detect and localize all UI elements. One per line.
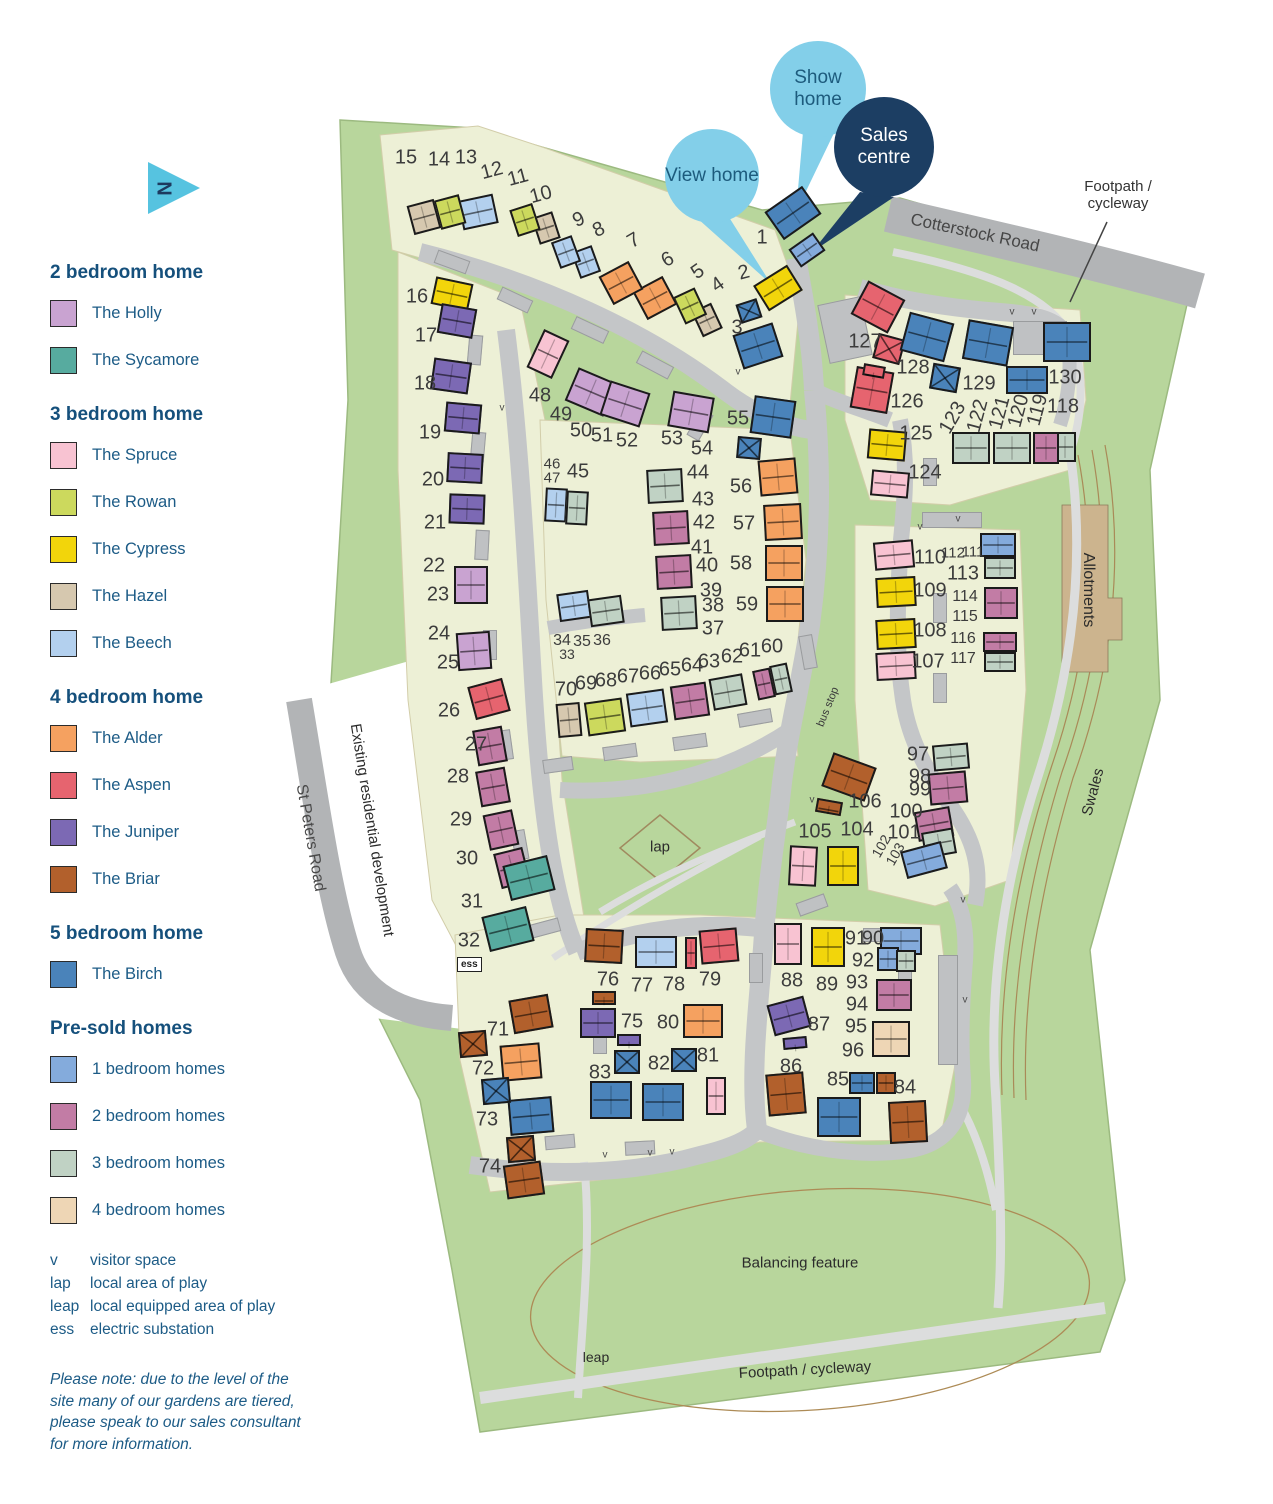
plot-number: 13 bbox=[455, 147, 477, 170]
roof-lines bbox=[670, 393, 713, 431]
house-juniper[interactable] bbox=[444, 401, 482, 434]
visitor-space-marker: v bbox=[736, 367, 741, 378]
roof-lines bbox=[877, 578, 914, 606]
house-briar[interactable] bbox=[888, 1100, 928, 1144]
plot-number: 97 bbox=[907, 744, 929, 767]
parking-bay bbox=[474, 530, 490, 561]
roof-lines bbox=[446, 404, 480, 433]
house-alder[interactable] bbox=[766, 586, 804, 622]
roof-lines bbox=[878, 1074, 894, 1092]
roof-lines bbox=[890, 1102, 926, 1142]
roof-lines bbox=[790, 847, 816, 884]
plot-number: 95 bbox=[845, 1016, 867, 1039]
house-briar[interactable] bbox=[503, 1161, 545, 1200]
visitor-space-marker: v bbox=[963, 995, 968, 1006]
roof-lines bbox=[458, 633, 490, 669]
roof-lines bbox=[662, 597, 696, 629]
plot-number: 125 bbox=[899, 423, 932, 446]
legend-item: The Hazel bbox=[50, 583, 320, 610]
plot-number: 112 bbox=[941, 545, 965, 562]
plot-number: 53 bbox=[661, 428, 683, 451]
house-birch[interactable] bbox=[1043, 322, 1091, 362]
map-label-leap: leap bbox=[583, 1349, 609, 1365]
spruce-swatch-icon bbox=[50, 442, 77, 469]
presold4-swatch-icon bbox=[50, 1197, 77, 1224]
roof-lines bbox=[879, 949, 897, 969]
legend-item-label: The Aspen bbox=[92, 776, 171, 795]
roof-lines bbox=[439, 305, 475, 336]
roof-lines bbox=[586, 930, 622, 962]
plot-number: 130 bbox=[1048, 367, 1081, 390]
house-birch[interactable] bbox=[849, 1072, 875, 1094]
house-briar[interactable] bbox=[592, 991, 616, 1005]
roof-lines bbox=[654, 512, 688, 544]
legend-item: The Cypress bbox=[50, 536, 320, 563]
house-presold3[interactable] bbox=[896, 950, 916, 972]
callout-sales-centre[interactable]: Sales centre bbox=[834, 97, 934, 197]
house-aspen[interactable] bbox=[862, 363, 886, 379]
house-briar[interactable] bbox=[506, 1135, 536, 1163]
roof-lines bbox=[701, 930, 737, 963]
roof-lines bbox=[628, 691, 666, 725]
roof-lines bbox=[819, 1099, 859, 1135]
aspen-swatch-icon bbox=[50, 772, 77, 799]
plot-number: 100 bbox=[889, 801, 922, 824]
abbreviation-key: ess bbox=[50, 1321, 90, 1339]
house-briar[interactable] bbox=[508, 994, 553, 1034]
visitor-space-marker: v bbox=[810, 795, 815, 806]
callout-view-home[interactable]: View home bbox=[665, 129, 759, 223]
house-presold2[interactable] bbox=[928, 770, 969, 805]
visitor-space-marker: v bbox=[918, 522, 923, 533]
abbreviation-desc: local equipped area of play bbox=[90, 1298, 275, 1316]
plot-number: 51 bbox=[591, 425, 613, 448]
legend-abbreviations: vvisitor spacelaplocal area of playleapl… bbox=[50, 1252, 320, 1339]
house-presold2[interactable] bbox=[670, 682, 710, 721]
roof-lines bbox=[644, 1085, 682, 1119]
legend-item-label: The Sycamore bbox=[92, 351, 199, 370]
legend-item-label: 3 bedroom homes bbox=[92, 1154, 225, 1173]
plot-number: 48 bbox=[529, 385, 551, 408]
house-beech[interactable] bbox=[544, 487, 568, 522]
house-cypress[interactable] bbox=[827, 846, 859, 886]
plot-number: 52 bbox=[616, 430, 638, 453]
legend-item: The Briar bbox=[50, 866, 320, 893]
house-presold3[interactable] bbox=[565, 490, 589, 525]
legend-abbreviation: esselectric substation bbox=[50, 1321, 320, 1339]
plot-number: 60 bbox=[761, 636, 783, 659]
rowan-swatch-icon bbox=[50, 489, 77, 516]
roof-lines bbox=[672, 684, 708, 718]
roof-lines bbox=[829, 848, 857, 884]
house-aspen[interactable] bbox=[685, 937, 697, 969]
parking-bay bbox=[933, 673, 947, 703]
roof-lines bbox=[1045, 324, 1089, 360]
house-briar[interactable] bbox=[458, 1030, 488, 1058]
legend-sections: 2 bedroom homeThe HollyThe Sycamore3 bed… bbox=[50, 262, 320, 1224]
plot-number: 21 bbox=[424, 512, 446, 535]
house-presold3[interactable] bbox=[646, 468, 684, 504]
roof-lines bbox=[986, 589, 1016, 617]
roof-lines bbox=[934, 745, 968, 770]
visitor-space-marker: v bbox=[648, 1148, 653, 1159]
roof-lines bbox=[432, 360, 470, 392]
legend-item-label: 1 bedroom homes bbox=[92, 1060, 225, 1079]
legend-item: 3 bedroom homes bbox=[50, 1150, 320, 1177]
plot-number: 94 bbox=[846, 994, 868, 1017]
plot-number: 124 bbox=[908, 462, 941, 485]
roof-lines bbox=[470, 680, 509, 717]
plot-number: 77 bbox=[631, 975, 653, 998]
house-presold2[interactable] bbox=[1033, 432, 1059, 464]
plot-number: 50 bbox=[570, 420, 592, 443]
house-birch[interactable] bbox=[1006, 366, 1048, 394]
house-presold2[interactable] bbox=[876, 979, 912, 1011]
legend-item: The Holly bbox=[50, 300, 320, 327]
house-presold3[interactable] bbox=[660, 595, 698, 631]
house-birch[interactable] bbox=[817, 1097, 861, 1137]
visitor-space-marker: v bbox=[961, 895, 966, 906]
roof-lines bbox=[985, 634, 1015, 650]
legend-item-label: The Alder bbox=[92, 729, 163, 748]
plot-number: 14 bbox=[428, 149, 450, 172]
presold1-swatch-icon bbox=[50, 1056, 77, 1083]
house-alder[interactable] bbox=[758, 457, 799, 496]
visitor-space-marker: v bbox=[956, 514, 961, 525]
roof-lines bbox=[619, 1041, 639, 1049]
roof-lines bbox=[508, 1137, 534, 1161]
house-spruce[interactable] bbox=[870, 469, 910, 498]
roof-lines bbox=[875, 541, 913, 568]
roof-lines bbox=[502, 1044, 541, 1079]
plot-number: 76 bbox=[597, 969, 619, 992]
house-presold2[interactable] bbox=[655, 554, 693, 590]
plot-number: 82 bbox=[648, 1053, 670, 1076]
house-rowan[interactable] bbox=[584, 698, 626, 737]
plot-number: 107 bbox=[911, 651, 944, 674]
plot-number: 79 bbox=[699, 969, 721, 992]
plot-number: 91 bbox=[845, 928, 867, 951]
roof-lines bbox=[931, 365, 958, 391]
house-birch[interactable] bbox=[614, 1050, 640, 1074]
house-briar[interactable] bbox=[584, 928, 624, 964]
plot-number: 71 bbox=[487, 1019, 509, 1042]
plot-number: 30 bbox=[456, 848, 478, 871]
plot-number: 1 bbox=[756, 227, 767, 250]
plot-number: 42 bbox=[693, 512, 715, 535]
plot-number: 126 bbox=[890, 391, 923, 414]
plot-number: 70 bbox=[555, 679, 577, 702]
roof-lines bbox=[485, 812, 517, 849]
house-spruce[interactable] bbox=[706, 1077, 726, 1115]
plot-number: 16 bbox=[406, 286, 428, 309]
visitor-space-marker: v bbox=[670, 1147, 675, 1158]
house-aspen[interactable] bbox=[699, 927, 740, 964]
plot-number: 15 bbox=[395, 147, 417, 170]
house-birch[interactable] bbox=[590, 1081, 632, 1119]
roof-lines bbox=[776, 925, 800, 963]
legend-section-heading: Pre-sold homes bbox=[50, 1018, 320, 1040]
legend-item-label: The Spruce bbox=[92, 446, 177, 465]
house-presold3[interactable] bbox=[993, 432, 1031, 464]
legend-section-heading: 2 bedroom home bbox=[50, 262, 320, 284]
roof-lines bbox=[898, 952, 914, 970]
house-birch[interactable] bbox=[750, 395, 797, 438]
house-birch[interactable] bbox=[642, 1083, 684, 1121]
house-juniper[interactable] bbox=[446, 452, 484, 484]
legend-item: The Rowan bbox=[50, 489, 320, 516]
roof-lines bbox=[877, 620, 914, 648]
house-cypress[interactable] bbox=[875, 618, 917, 650]
house-cypress[interactable] bbox=[875, 576, 917, 608]
map-label-footpath-cycleway: Footpath / cycleway bbox=[1084, 178, 1152, 212]
roof-lines bbox=[594, 996, 614, 1006]
plot-number: 36 bbox=[593, 632, 611, 650]
house-presold2[interactable] bbox=[475, 767, 511, 808]
cypress-swatch-icon bbox=[50, 536, 77, 563]
plot-number: 96 bbox=[842, 1040, 864, 1063]
roof-lines bbox=[765, 505, 801, 539]
house-birch[interactable] bbox=[508, 1096, 555, 1136]
house-alder[interactable] bbox=[683, 1004, 723, 1038]
plot-number: 32 bbox=[458, 930, 480, 953]
roof-lines bbox=[874, 1023, 908, 1055]
legend-section-heading: 5 bedroom home bbox=[50, 923, 320, 945]
house-alder[interactable] bbox=[765, 545, 803, 581]
legend-item-label: The Hazel bbox=[92, 587, 167, 606]
plot-number: 116 bbox=[950, 630, 976, 648]
house-beech[interactable] bbox=[626, 689, 668, 728]
plot-number: 55 bbox=[727, 408, 749, 431]
house-presold1[interactable] bbox=[980, 533, 1016, 557]
house-alder[interactable] bbox=[500, 1042, 543, 1081]
roof-lines bbox=[1035, 434, 1057, 462]
plot-number: 47 bbox=[544, 470, 561, 487]
plot-number: 111 bbox=[962, 544, 985, 561]
roof-lines bbox=[505, 857, 553, 898]
house-beech[interactable] bbox=[635, 936, 677, 968]
abbreviation-key: lap bbox=[50, 1275, 90, 1293]
parking-bay bbox=[749, 953, 763, 983]
roof-lines bbox=[1008, 368, 1046, 392]
roof-lines bbox=[930, 773, 966, 804]
plot-number: 26 bbox=[438, 700, 460, 723]
roof-lines bbox=[708, 1079, 724, 1113]
legend-item-label: The Beech bbox=[92, 634, 172, 653]
plot-number: 85 bbox=[827, 1069, 849, 1092]
house-juniper[interactable] bbox=[448, 493, 485, 524]
house-juniper[interactable] bbox=[430, 358, 472, 395]
alder-swatch-icon bbox=[50, 725, 77, 752]
plot-number: 27 bbox=[465, 734, 487, 757]
house-hazel[interactable] bbox=[556, 702, 583, 738]
house-spruce[interactable] bbox=[774, 923, 802, 965]
abbreviation-key: leap bbox=[50, 1298, 90, 1316]
house-birch[interactable] bbox=[481, 1077, 511, 1105]
abbreviation-desc: visitor space bbox=[90, 1252, 176, 1270]
plot-number: 34 bbox=[553, 632, 571, 650]
roof-lines bbox=[768, 588, 802, 620]
roof-lines bbox=[877, 653, 914, 679]
legend-item-label: The Cypress bbox=[92, 540, 186, 559]
parking-bay bbox=[544, 1134, 575, 1151]
house-beech[interactable] bbox=[556, 590, 592, 622]
roof-lines bbox=[964, 322, 1012, 365]
plot-number: 84 bbox=[894, 1077, 916, 1100]
legend-abbreviation: leaplocal equipped area of play bbox=[50, 1298, 320, 1316]
legend-item: The Juniper bbox=[50, 819, 320, 846]
roof-lines bbox=[878, 981, 910, 1009]
roof-lines bbox=[769, 998, 809, 1034]
map-label-lap: lap bbox=[650, 839, 670, 856]
plot-number: 83 bbox=[589, 1062, 611, 1085]
plot-number: 20 bbox=[422, 469, 444, 492]
roof-lines bbox=[589, 597, 622, 625]
plot-number: 29 bbox=[450, 809, 472, 832]
map-label-balancing-feature: Balancing feature bbox=[742, 1255, 859, 1272]
house-holly[interactable] bbox=[456, 631, 493, 671]
plot-number: 117 bbox=[950, 650, 976, 668]
plot-number: 75 bbox=[621, 1011, 643, 1034]
house-alder[interactable] bbox=[763, 503, 803, 541]
plot-number: 41 bbox=[691, 537, 713, 560]
plot-number: 114 bbox=[952, 588, 978, 606]
plot-number: 87 bbox=[808, 1014, 830, 1037]
hazel-swatch-icon bbox=[50, 583, 77, 610]
house-presold3[interactable] bbox=[984, 652, 1016, 672]
plot-number: 129 bbox=[962, 373, 995, 396]
legend-item-label: 2 bedroom homes bbox=[92, 1107, 225, 1126]
legend-item-label: The Rowan bbox=[92, 493, 176, 512]
house-juniper[interactable] bbox=[617, 1034, 641, 1046]
house-presold3[interactable] bbox=[708, 673, 747, 710]
abbreviation-desc: local area of play bbox=[90, 1275, 207, 1293]
roof-lines bbox=[510, 1098, 553, 1133]
roof-lines bbox=[954, 434, 988, 462]
plot-number: 22 bbox=[423, 555, 445, 578]
plot-number: 57 bbox=[733, 513, 755, 536]
house-spruce[interactable] bbox=[873, 539, 915, 570]
legend: 2 bedroom homeThe HollyThe Sycamore3 bed… bbox=[50, 262, 320, 1456]
roof-lines bbox=[592, 1083, 630, 1117]
legend-item: 4 bedroom homes bbox=[50, 1197, 320, 1224]
roof-lines bbox=[760, 460, 797, 495]
plot-number: 128 bbox=[896, 357, 929, 380]
house-spruce[interactable] bbox=[788, 845, 818, 886]
legend-note: Please note: due to the level of the sit… bbox=[50, 1369, 315, 1456]
house-holly[interactable] bbox=[454, 566, 488, 604]
plot-number: 65 bbox=[659, 659, 681, 682]
house-presold2[interactable] bbox=[983, 632, 1017, 652]
plot-number: 45 bbox=[567, 461, 589, 484]
roof-lines bbox=[657, 556, 691, 588]
house-presold4[interactable] bbox=[872, 1021, 910, 1057]
house-birch[interactable] bbox=[736, 436, 762, 460]
plot-number: 59 bbox=[736, 594, 758, 617]
roof-lines bbox=[995, 434, 1029, 462]
plot-number: 19 bbox=[419, 422, 441, 445]
legend-item: The Birch bbox=[50, 961, 320, 988]
legend-item: The Spruce bbox=[50, 442, 320, 469]
house-presold2[interactable] bbox=[984, 587, 1018, 619]
house-cypress[interactable] bbox=[811, 927, 845, 967]
plot-number: 80 bbox=[657, 1012, 679, 1035]
parking-bay bbox=[922, 512, 982, 528]
visitor-space-marker: v bbox=[1032, 307, 1037, 318]
house-presold3[interactable] bbox=[587, 595, 625, 627]
roof-lines bbox=[512, 205, 538, 234]
sycamore-swatch-icon bbox=[50, 347, 77, 374]
plot-number: 115 bbox=[952, 608, 978, 626]
roof-lines bbox=[986, 654, 1014, 670]
plot-number: 25 bbox=[437, 652, 459, 675]
plot-number: 18 bbox=[414, 373, 436, 396]
legend-item-label: 4 bedroom homes bbox=[92, 1201, 225, 1220]
roof-lines bbox=[637, 938, 675, 966]
site-plan-stage: N 2 bedroom homeThe HollyThe Sycamore3 b… bbox=[0, 0, 1273, 1504]
roof-lines bbox=[903, 843, 946, 876]
plot-number: 93 bbox=[846, 972, 868, 995]
visitor-space-marker: v bbox=[500, 403, 505, 414]
house-birch[interactable] bbox=[671, 1048, 697, 1072]
house-juniper[interactable] bbox=[437, 303, 478, 339]
ess-badge: ess bbox=[457, 957, 482, 972]
roof-lines bbox=[648, 470, 682, 502]
plot-number: 44 bbox=[687, 462, 709, 485]
birch-swatch-icon bbox=[50, 961, 77, 988]
juniper-swatch-icon bbox=[50, 819, 77, 846]
parking-bay bbox=[938, 955, 958, 1065]
plot-number: 3 bbox=[731, 317, 742, 340]
plot-number: 86 bbox=[780, 1056, 802, 1079]
house-presold3[interactable] bbox=[932, 742, 970, 771]
roof-lines bbox=[986, 559, 1014, 577]
abbreviation-key: v bbox=[50, 1252, 90, 1270]
roof-lines bbox=[448, 454, 481, 482]
presold3-swatch-icon bbox=[50, 1150, 77, 1177]
house-birch[interactable] bbox=[962, 319, 1014, 366]
house-presold2[interactable] bbox=[652, 510, 690, 546]
plot-number: 49 bbox=[550, 404, 572, 427]
house-presold3[interactable] bbox=[952, 432, 990, 464]
house-presold3[interactable] bbox=[984, 557, 1016, 579]
roof-lines bbox=[767, 547, 801, 579]
house-juniper[interactable] bbox=[783, 1036, 808, 1050]
plot-number: 69 bbox=[575, 673, 597, 696]
plot-number: 39 bbox=[700, 580, 722, 603]
house-juniper[interactable] bbox=[580, 1008, 616, 1038]
roof-lines bbox=[451, 495, 484, 522]
plot-number: 68 bbox=[595, 670, 617, 693]
roof-lines bbox=[586, 700, 624, 734]
legend-item: 2 bedroom homes bbox=[50, 1103, 320, 1130]
roof-lines bbox=[456, 568, 486, 602]
plot-number: 113 bbox=[947, 563, 979, 586]
roof-lines bbox=[484, 908, 532, 949]
roof-lines bbox=[902, 314, 952, 360]
abbreviation-desc: electric substation bbox=[90, 1321, 214, 1339]
legend-item-label: The Holly bbox=[92, 304, 162, 323]
plot-number: 62 bbox=[721, 646, 743, 669]
north-letter: N bbox=[152, 181, 175, 195]
visitor-space-marker: v bbox=[603, 1150, 608, 1161]
roof-lines bbox=[558, 704, 581, 736]
plot-number: 105 bbox=[798, 821, 831, 844]
house-birch[interactable] bbox=[929, 363, 961, 393]
legend-item-label: The Juniper bbox=[92, 823, 179, 842]
briar-swatch-icon bbox=[50, 866, 77, 893]
plot-number: 54 bbox=[691, 438, 713, 461]
